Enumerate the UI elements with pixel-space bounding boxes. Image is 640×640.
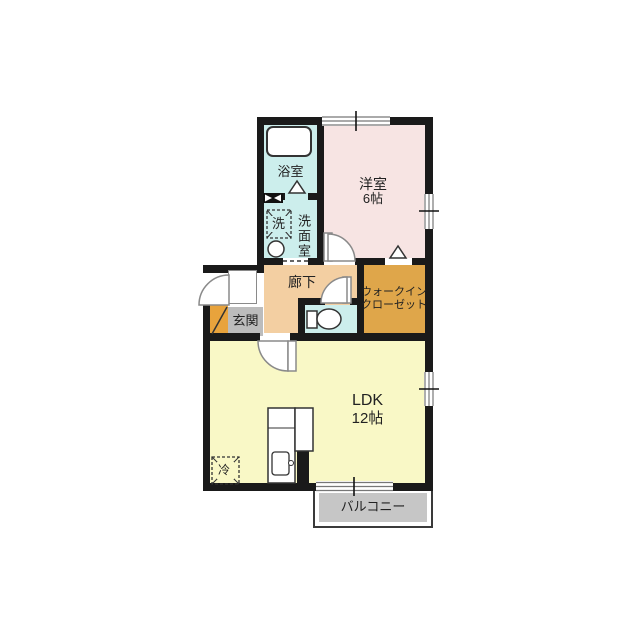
window-balcony	[316, 477, 393, 496]
window-top	[322, 111, 390, 131]
ldk-label: LDK 12帖	[330, 392, 405, 428]
western-room-label: 洋室 6帖	[340, 176, 406, 207]
window-ldk-right	[419, 372, 439, 406]
fixtures-overlay	[0, 0, 640, 640]
toilet-door-arc	[321, 277, 351, 303]
western-room-door-arc	[324, 233, 355, 261]
ldk-name: LDK	[330, 392, 405, 410]
bathroom-window-icon	[263, 193, 283, 203]
toilet-fixture	[307, 309, 341, 329]
western-room-size: 6帖	[340, 192, 406, 207]
window-western-right	[419, 194, 439, 229]
closet-entry-triangle	[390, 246, 406, 258]
hall-ldk-door-arc	[258, 341, 296, 371]
washer-label: 洗	[272, 217, 285, 232]
hallway-label: 廊下	[281, 274, 323, 290]
fridge-label: 冷	[218, 464, 230, 478]
balcony-label: バルコニー	[319, 500, 427, 515]
ldk-size: 12帖	[330, 410, 405, 427]
genkan-step-line	[212, 307, 227, 334]
western-room-name: 洋室	[340, 176, 406, 192]
washroom-sink	[268, 241, 284, 257]
walkin-closet-line2: クローゼット	[360, 299, 428, 312]
kitchen-counter	[268, 408, 313, 483]
entrance-door-arc	[199, 275, 229, 305]
bathroom-label: 浴室	[264, 165, 317, 180]
genkan-label: 玄関	[228, 314, 263, 329]
bathtub	[267, 127, 311, 156]
bathroom-door-triangle	[289, 181, 305, 193]
walkin-closet-line1: ウォークイン	[360, 286, 428, 299]
floor-plan: 浴室 洗面室 洗 洋室 6帖 廊下 玄関 ウォークイン クローゼット LDK 1…	[0, 0, 640, 640]
washroom-label: 洗面室	[295, 210, 310, 262]
walkin-closet-label: ウォークイン クローゼット	[360, 286, 428, 311]
